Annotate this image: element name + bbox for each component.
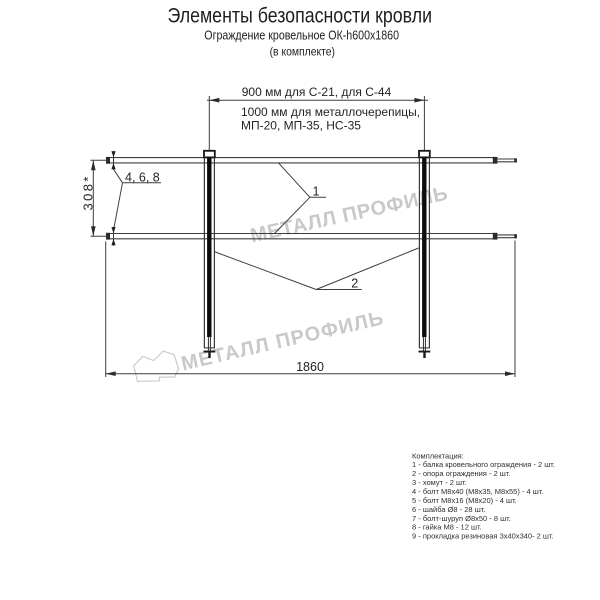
- svg-text:(в комплекте): (в комплекте): [270, 44, 335, 58]
- svg-text:3 - хомут - 2 шт.: 3 - хомут - 2 шт.: [412, 478, 467, 487]
- svg-text:4 - болт М8х40 (М8х35, М8х55): 4 - болт М8х40 (М8х35, М8х55) - 4 шт.: [412, 487, 543, 496]
- svg-text:Ограждение кровельное ОК-h600х: Ограждение кровельное ОК-h600х1860: [204, 28, 399, 42]
- svg-text:308*: 308*: [81, 174, 96, 210]
- svg-text:4, 6, 8: 4, 6, 8: [125, 170, 160, 184]
- svg-text:1 - балка кровельного огражден: 1 - балка кровельного ограждения - 2 шт.: [412, 460, 555, 469]
- svg-text:6 - шайба Ø8 - 28 шт.: 6 - шайба Ø8 - 28 шт.: [412, 505, 485, 514]
- svg-text:МП-20, МП-35, НС-35: МП-20, МП-35, НС-35: [241, 119, 361, 133]
- svg-text:7 - болт-шуруп Ø8х50 - 8 шт.: 7 - болт-шуруп Ø8х50 - 8 шт.: [412, 514, 511, 523]
- svg-text:5 - болт М8х16 (М8х20) - 4 шт.: 5 - болт М8х16 (М8х20) - 4 шт.: [412, 496, 517, 505]
- svg-text:МЕТАЛЛ ПРОФИЛЬ: МЕТАЛЛ ПРОФИЛЬ: [248, 183, 450, 248]
- svg-text:Элементы безопасности кровли: Элементы безопасности кровли: [168, 4, 433, 27]
- svg-text:2: 2: [351, 277, 358, 291]
- svg-text:Комплектация:: Комплектация:: [412, 451, 464, 460]
- svg-text:1000 мм для металлочерепицы,: 1000 мм для металлочерепицы,: [241, 105, 420, 119]
- svg-text:9 - прокладка резиновая 3х40х3: 9 - прокладка резиновая 3х40х340- 2 шт.: [412, 532, 554, 541]
- svg-text:2 - опора ограждения - 2 шт.: 2 - опора ограждения - 2 шт.: [412, 469, 511, 478]
- svg-text:8 - гайка М8 - 12 шт.: 8 - гайка М8 - 12 шт.: [412, 523, 482, 532]
- svg-text:1860: 1860: [296, 360, 324, 374]
- svg-text:900 мм для С-21, для С-44: 900 мм для С-21, для С-44: [242, 85, 392, 99]
- svg-text:1: 1: [313, 184, 320, 198]
